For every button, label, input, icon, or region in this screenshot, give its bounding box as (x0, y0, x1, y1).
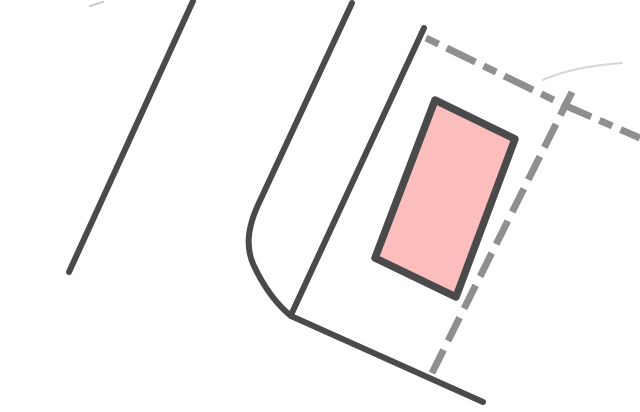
faint-scratch-mark (543, 63, 622, 80)
site-plan-map (0, 0, 640, 412)
map-drawing (0, 0, 640, 412)
building-footprint (375, 100, 515, 297)
road-edge-line-left (69, 1, 193, 272)
faint-tick-mark (90, 2, 103, 6)
